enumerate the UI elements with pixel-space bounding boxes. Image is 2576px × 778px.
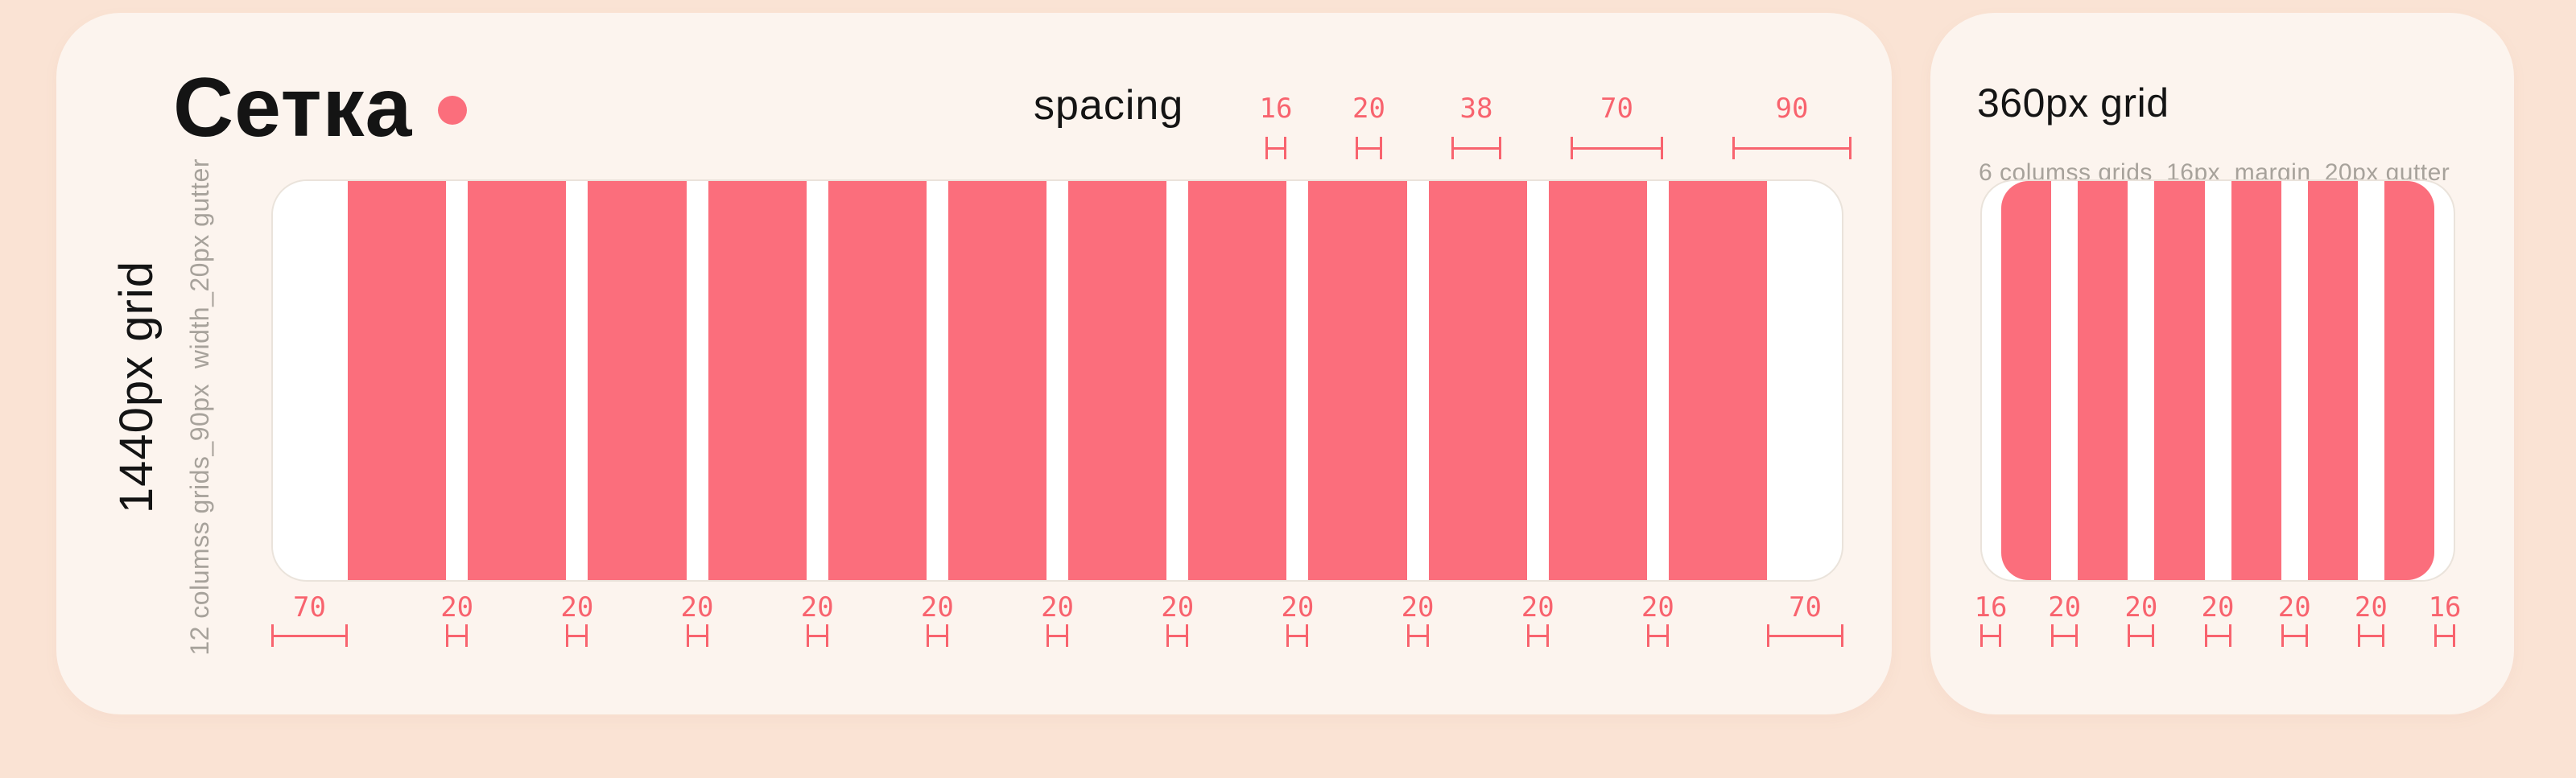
grid-spec-card-360: 360px grid 6 columss grids_16px margin_2… xyxy=(1930,13,2514,714)
measurement-value: 16 xyxy=(1260,95,1293,122)
grid-column xyxy=(1669,181,1767,580)
measurement-value: 20 xyxy=(2124,594,2157,621)
measurement: 20 xyxy=(1286,594,1308,647)
measurement-spacer xyxy=(1308,594,1406,595)
measurement: 20 xyxy=(1166,594,1188,647)
measurement-value: 20 xyxy=(1041,594,1074,621)
measurement: 20 xyxy=(2281,594,2308,647)
measurement-spacer xyxy=(1188,594,1286,595)
measurement-spacer xyxy=(2308,594,2358,595)
measurement-bracket-icon xyxy=(2358,624,2384,647)
measurement-value: 90 xyxy=(1776,95,1809,122)
grid-canvas-1440 xyxy=(271,179,1843,582)
measurement-bracket-icon xyxy=(566,624,588,647)
measurement: 20 xyxy=(2051,594,2078,647)
spacing-token-row: 1620387090 xyxy=(1265,95,1851,159)
measurement-bracket-icon xyxy=(1286,624,1308,647)
grid-column xyxy=(348,181,446,580)
grid-column xyxy=(1308,181,1406,580)
measurement-value: 20 xyxy=(1281,594,1314,621)
measurement-spacer xyxy=(588,594,686,595)
measurement-bracket-icon xyxy=(1407,624,1429,647)
measurement-bracket-icon xyxy=(2205,624,2231,647)
measurement: 20 xyxy=(1046,594,1068,647)
grid-column xyxy=(2001,181,2051,580)
measurement: 20 xyxy=(2358,594,2384,647)
measurement-spacer xyxy=(948,594,1046,595)
measurement-bracket-icon xyxy=(2128,624,2154,647)
grid-spec-page: { "colors": { "page_bg": "#fae3d4", "car… xyxy=(0,0,2576,778)
grid-vertical-title: 1440px grid xyxy=(114,261,160,513)
grid-column xyxy=(828,181,927,580)
measurement-bracket-icon xyxy=(1571,137,1663,159)
measurement: 20 xyxy=(2128,594,2154,647)
spacing-token: 90 xyxy=(1732,95,1851,159)
measurement-value: 20 xyxy=(2048,594,2081,621)
grid-columns xyxy=(2001,181,2434,580)
grid-column xyxy=(2231,181,2281,580)
measurement-bracket-icon xyxy=(1647,624,1669,647)
grid-canvas-360 xyxy=(1980,179,2455,582)
measurement-value: 20 xyxy=(681,594,714,621)
measurement-spacer xyxy=(2001,594,2051,595)
measurement-value: 20 xyxy=(2278,594,2311,621)
measurement: 20 xyxy=(446,594,468,647)
measurement: 20 xyxy=(1527,594,1549,647)
grid-column xyxy=(1188,181,1286,580)
measurement: 20 xyxy=(1647,594,1669,647)
measurement-value: 20 xyxy=(1352,95,1385,122)
measurement-spacer xyxy=(828,594,927,595)
measurement: 20 xyxy=(807,594,828,647)
measurement-spacer xyxy=(1549,594,1647,595)
grid-column xyxy=(588,181,686,580)
grid-column xyxy=(1549,181,1647,580)
measurement-value: 16 xyxy=(2429,594,2462,621)
grid-column xyxy=(2078,181,2128,580)
measurement-bracket-icon xyxy=(2051,624,2078,647)
measurement-spacer xyxy=(1669,594,1767,595)
measurement: 20 xyxy=(2205,594,2231,647)
spacing-token: 70 xyxy=(1571,95,1663,159)
grid-column xyxy=(468,181,566,580)
measurement-row-1440: 70202020202020202020202070 xyxy=(271,594,1843,647)
measurement-value: 20 xyxy=(1641,594,1674,621)
measurement-value: 20 xyxy=(440,594,473,621)
measurement-bracket-icon xyxy=(1527,624,1549,647)
measurement-value: 20 xyxy=(1521,594,1554,621)
page-title: Сетка xyxy=(173,66,412,150)
measurement-value: 20 xyxy=(2202,594,2235,621)
measurement-bracket-icon xyxy=(807,624,828,647)
measurement-bracket-icon xyxy=(2281,624,2308,647)
spacing-token: 38 xyxy=(1451,95,1501,159)
grid-columns xyxy=(348,181,1767,580)
measurement-value: 20 xyxy=(1402,594,1435,621)
measurement-value: 16 xyxy=(1975,594,2008,621)
measurement-spacer xyxy=(2154,594,2204,595)
measurement-bracket-icon xyxy=(927,624,948,647)
measurement-value: 70 xyxy=(1789,594,1822,621)
measurement-spacer xyxy=(348,594,446,595)
measurement-value: 20 xyxy=(1161,594,1194,621)
measurement-spacer xyxy=(2231,594,2281,595)
measurement-value: 20 xyxy=(801,594,834,621)
measurement-value: 20 xyxy=(921,594,954,621)
measurement-bracket-icon xyxy=(687,624,708,647)
measurement: 20 xyxy=(1407,594,1429,647)
grid-column xyxy=(2308,181,2358,580)
measurement: 20 xyxy=(927,594,948,647)
spacing-token: 16 xyxy=(1265,95,1286,159)
accent-dot-icon xyxy=(438,96,467,125)
grid-column xyxy=(948,181,1046,580)
measurement-spacer xyxy=(2078,594,2128,595)
measurement: 20 xyxy=(566,594,588,647)
measurement-spacer xyxy=(468,594,566,595)
measurement-row-360: 16202020202016 xyxy=(1980,594,2455,647)
measurement-value: 38 xyxy=(1460,95,1493,122)
grid-vertical-subtitle: 12 columss grids_90px width_20px gutter xyxy=(187,158,213,656)
measurement: 20 xyxy=(687,594,708,647)
measurement-bracket-icon xyxy=(271,624,348,647)
spacing-token: 20 xyxy=(1356,95,1382,159)
grid-vertical-title-wrap: 1440px grid xyxy=(101,186,173,588)
measurement: 16 xyxy=(2434,594,2455,647)
measurement-value: 70 xyxy=(293,594,326,621)
measurement-bracket-icon xyxy=(1356,137,1382,159)
measurement-value: 70 xyxy=(1600,95,1633,122)
grid-column xyxy=(1429,181,1527,580)
measurement-bracket-icon xyxy=(1980,624,2001,647)
measurement-bracket-icon xyxy=(1732,137,1851,159)
measurement: 70 xyxy=(1767,594,1843,647)
spacing-label: spacing xyxy=(1034,84,1183,126)
grid-spec-card-1440: Сетка spacing 1620387090 1440px grid 12 … xyxy=(56,13,1892,714)
measurement-bracket-icon xyxy=(1265,137,1286,159)
measurement-spacer xyxy=(1068,594,1166,595)
measurement-value: 20 xyxy=(2355,594,2388,621)
card-title-360: 360px grid xyxy=(1977,83,2169,123)
grid-column xyxy=(1068,181,1166,580)
grid-vertical-subtitle-wrap: 12 columss grids_90px width_20px gutter xyxy=(177,182,222,632)
measurement-bracket-icon xyxy=(1767,624,1843,647)
measurement-spacer xyxy=(1429,594,1527,595)
measurement-bracket-icon xyxy=(1046,624,1068,647)
grid-column xyxy=(708,181,807,580)
measurement: 16 xyxy=(1980,594,2001,647)
measurement-spacer xyxy=(2384,594,2434,595)
measurement-bracket-icon xyxy=(446,624,468,647)
measurement-bracket-icon xyxy=(1166,624,1188,647)
grid-column xyxy=(2154,181,2204,580)
measurement-bracket-icon xyxy=(1451,137,1501,159)
grid-column xyxy=(2384,181,2434,580)
measurement-bracket-icon xyxy=(2434,624,2455,647)
measurement: 70 xyxy=(271,594,348,647)
measurement-value: 20 xyxy=(560,594,593,621)
measurement-spacer xyxy=(708,594,807,595)
card-title-row: Сетка xyxy=(173,66,467,150)
